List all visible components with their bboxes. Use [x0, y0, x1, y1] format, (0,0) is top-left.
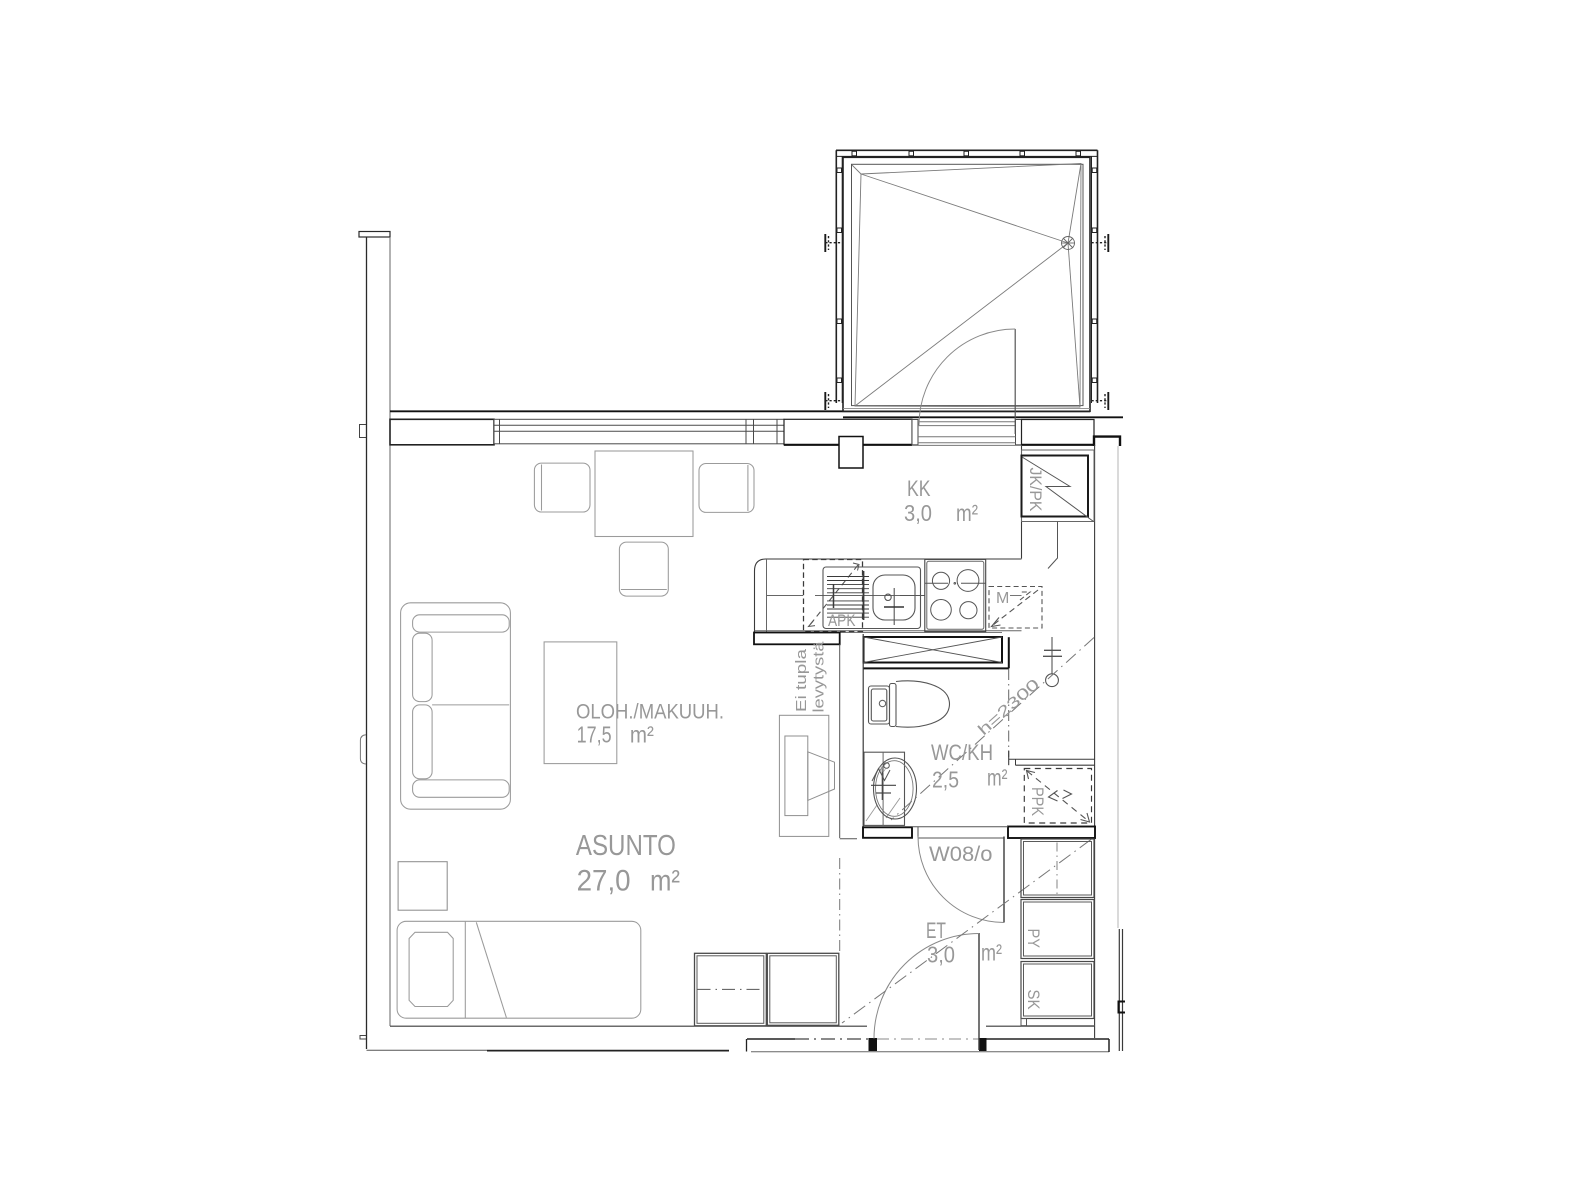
svg-text:KK: KK: [907, 476, 931, 501]
svg-text:m²: m²: [981, 940, 1002, 966]
svg-text:27,0: 27,0: [577, 865, 631, 898]
svg-text:OLOH./MAKUUH.: OLOH./MAKUUH.: [576, 701, 724, 724]
svg-text:2,5: 2,5: [932, 767, 959, 793]
svg-text:m²: m²: [987, 765, 1008, 791]
svg-text:PY: PY: [1024, 929, 1043, 949]
svg-text:levytystä: levytystä: [811, 641, 828, 713]
svg-text:3,0: 3,0: [927, 942, 955, 968]
svg-text:W08/o: W08/o: [929, 843, 993, 866]
svg-text:PPK: PPK: [1028, 787, 1047, 817]
svg-text:3,0: 3,0: [904, 500, 932, 526]
svg-text:APK: APK: [828, 612, 856, 630]
svg-text:Ei tupla: Ei tupla: [793, 648, 810, 712]
svg-text:m²: m²: [956, 500, 978, 526]
svg-text:WC/KH: WC/KH: [931, 740, 993, 765]
svg-text:m²: m²: [630, 722, 654, 748]
svg-text:m²: m²: [650, 865, 680, 898]
svg-text:JK/PK: JK/PK: [1026, 468, 1044, 512]
svg-text:ASUNTO: ASUNTO: [576, 830, 676, 862]
svg-text:17,5: 17,5: [577, 722, 612, 748]
svg-text:ET: ET: [926, 918, 946, 943]
svg-text:M: M: [996, 590, 1009, 607]
svg-text:SK: SK: [1024, 990, 1043, 1011]
